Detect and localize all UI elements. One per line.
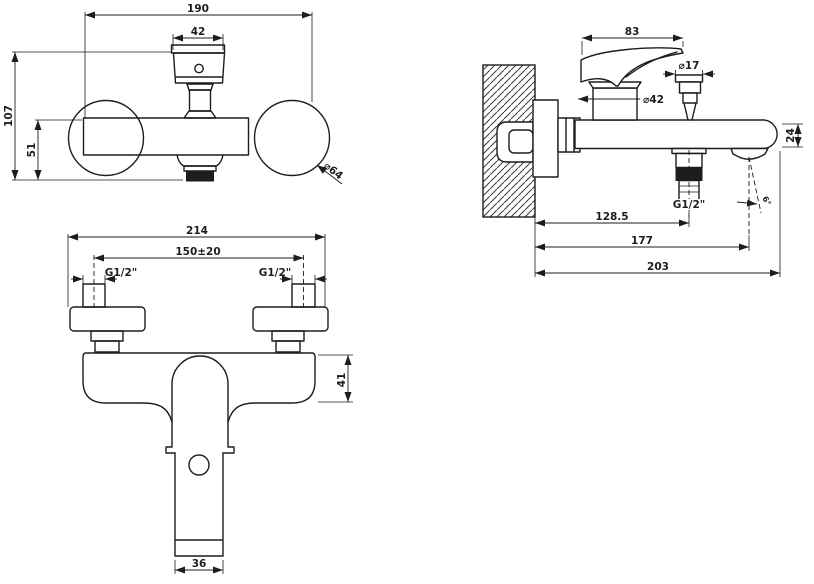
dim-side-outlet-thread: G1/2" xyxy=(673,199,706,211)
dim-label-g12-right: G1/2" xyxy=(259,267,292,279)
front-view: 190 42 107 51 ⌀64 xyxy=(3,3,345,184)
dim-side-end-height: 24 xyxy=(782,124,803,147)
left-connector-stem xyxy=(95,341,119,352)
cartridge-sleeve-side xyxy=(593,88,637,120)
dim-label-36: 36 xyxy=(192,558,207,570)
technical-drawing: 190 42 107 51 ⌀64 xyxy=(0,0,814,584)
handle-column-lip xyxy=(166,447,234,453)
handle-cap xyxy=(174,53,225,83)
dim-side-total-projection: 203 xyxy=(535,151,780,277)
right-connector-nut xyxy=(272,331,304,341)
top-view: 214 150±20 G1/2" G1/2" 41 36 xyxy=(68,225,353,574)
mixer-body-bar xyxy=(84,118,249,155)
dim-label-214: 214 xyxy=(186,225,208,237)
dim-top-right-inlet-thread: G1/2" xyxy=(259,267,327,286)
dim-front-flange-diameter: ⌀64 xyxy=(317,160,345,184)
mixer-body-side xyxy=(575,120,777,149)
aerator-knurl xyxy=(187,171,214,181)
left-wall-flange xyxy=(69,101,144,176)
dim-label-203: 203 xyxy=(647,261,669,273)
dim-label-g12-left: G1/2" xyxy=(105,267,138,279)
body-top-outline xyxy=(83,353,315,422)
dim-top-left-inlet-thread: G1/2" xyxy=(71,267,137,286)
dim-label-24: 24 xyxy=(785,128,797,143)
dim-front-cartridge-width: 42 xyxy=(173,26,223,50)
dim-front-lower-height: 51 xyxy=(26,120,82,180)
dim-front-overall-height: 107 xyxy=(3,52,183,180)
cartridge-skirt xyxy=(184,111,216,118)
right-wall-flange xyxy=(255,101,330,176)
right-flange-top xyxy=(253,307,328,331)
dim-front-overall-width: 190 xyxy=(85,3,312,118)
dim-label-d42: ⌀42 xyxy=(643,94,664,106)
side-view: 6° 83 ⌀17 ⌀42 24 G1/2" 128.5 xyxy=(483,26,803,277)
left-flange-top xyxy=(70,307,145,331)
dim-label-177: 177 xyxy=(631,235,653,247)
handle-column-arch xyxy=(172,356,228,447)
dim-label-128-5: 128.5 xyxy=(595,211,628,223)
handle-pivot-hole xyxy=(195,64,203,72)
dim-top-body-depth: 41 xyxy=(318,355,353,402)
cartridge-flange xyxy=(187,84,213,90)
hose-connector-flange xyxy=(676,75,703,82)
lever-handle-side xyxy=(581,48,683,86)
dim-label-150-20: 150±20 xyxy=(175,246,220,258)
spout-skirt xyxy=(177,155,223,166)
dim-top-inlet-spacing: 150±20 xyxy=(94,246,304,258)
drawing-canvas: 190 42 107 51 ⌀64 xyxy=(0,0,814,584)
left-connector-nut xyxy=(91,331,123,341)
dim-label-d64: ⌀64 xyxy=(321,160,345,182)
dim-label-107: 107 xyxy=(3,105,15,127)
wall-cover-plate xyxy=(533,100,558,177)
handle-top-plate xyxy=(172,45,225,53)
dim-label-angle: 6° xyxy=(760,195,772,208)
spout-angle-arrow xyxy=(737,202,757,204)
hose-connector-taper xyxy=(684,103,696,120)
dim-label-51: 51 xyxy=(26,143,38,158)
dim-label-83: 83 xyxy=(625,26,640,38)
spout-tilted-axis xyxy=(749,157,761,213)
dim-label-41: 41 xyxy=(336,373,348,388)
inwall-union-inner xyxy=(509,130,533,153)
cartridge-neck xyxy=(190,90,211,111)
dim-label-g12-outlet: G1/2" xyxy=(673,199,706,211)
dim-label-d17: ⌀17 xyxy=(679,60,700,72)
dim-side-wall-to-outlet: 128.5 xyxy=(535,210,689,227)
handle-column-hole xyxy=(189,455,209,475)
hose-connector-ring xyxy=(680,82,701,93)
dim-label-190: 190 xyxy=(187,3,209,15)
dim-side-wall-to-spout: 177 xyxy=(535,235,749,251)
handle-column-shaft xyxy=(175,453,223,556)
dim-top-handle-width: 36 xyxy=(175,558,223,574)
hose-connector-neck xyxy=(683,93,697,103)
dim-label-42: 42 xyxy=(191,26,206,38)
right-connector-stem xyxy=(276,341,300,352)
dim-top-overall-width: 214 xyxy=(68,225,325,307)
aerator-collar xyxy=(184,166,216,171)
